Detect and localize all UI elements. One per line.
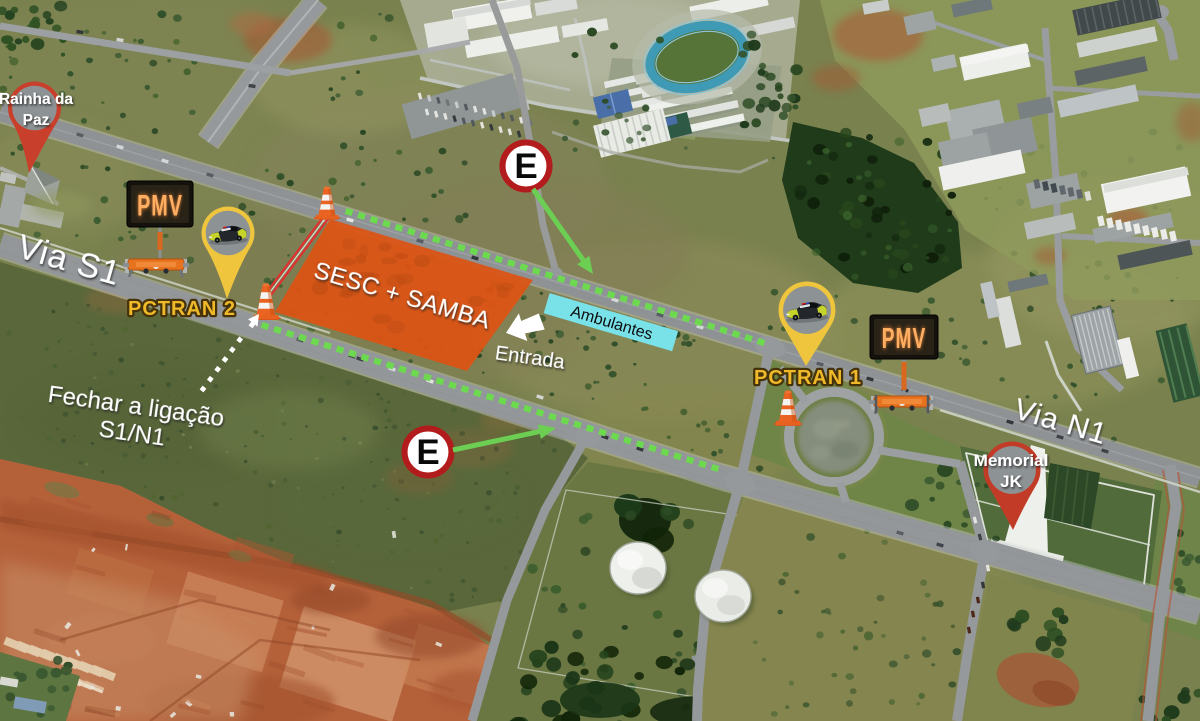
svg-text:Memorial: Memorial	[974, 451, 1049, 470]
svg-text:Rainha da: Rainha da	[0, 91, 73, 108]
svg-text:JK: JK	[1000, 472, 1022, 491]
svg-text:PMV: PMV	[882, 323, 926, 355]
svg-text:PCTRAN 1: PCTRAN 1	[754, 367, 862, 389]
svg-text:PCTRAN 2: PCTRAN 2	[128, 298, 236, 320]
svg-text:PMV: PMV	[137, 189, 183, 222]
svg-text:E: E	[514, 147, 537, 186]
svg-text:E: E	[416, 433, 439, 472]
svg-text:Paz: Paz	[23, 112, 50, 129]
